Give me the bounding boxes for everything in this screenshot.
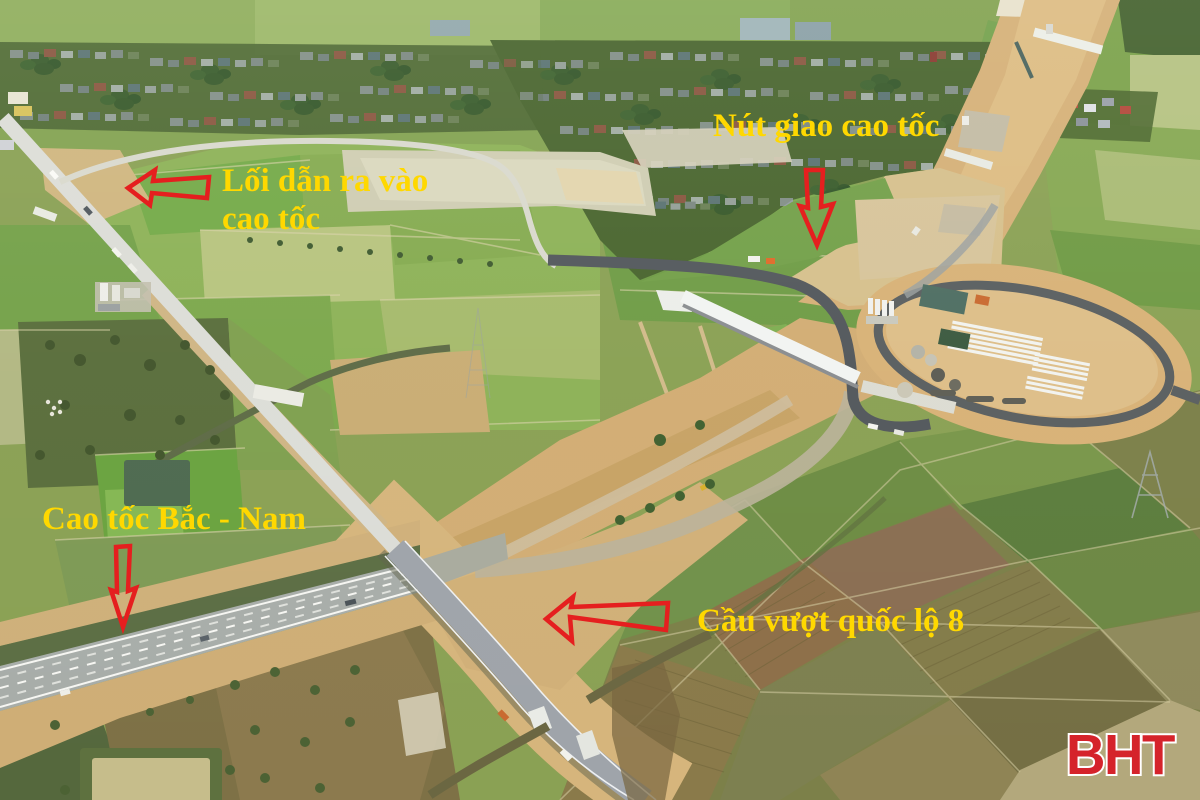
svg-text:Lối dẫn ra vào: Lối dẫn ra vào xyxy=(222,163,428,199)
svg-text:Nút giao cao tốc: Nút giao cao tốc xyxy=(713,108,939,144)
svg-text:cao tốc: cao tốc xyxy=(222,201,320,237)
svg-text:Cầu vượt quốc lộ 8: Cầu vượt quốc lộ 8 xyxy=(697,603,964,639)
svg-text:BHT: BHT xyxy=(1066,723,1176,787)
svg-text:Cao tốc Bắc - Nam: Cao tốc Bắc - Nam xyxy=(42,501,306,537)
